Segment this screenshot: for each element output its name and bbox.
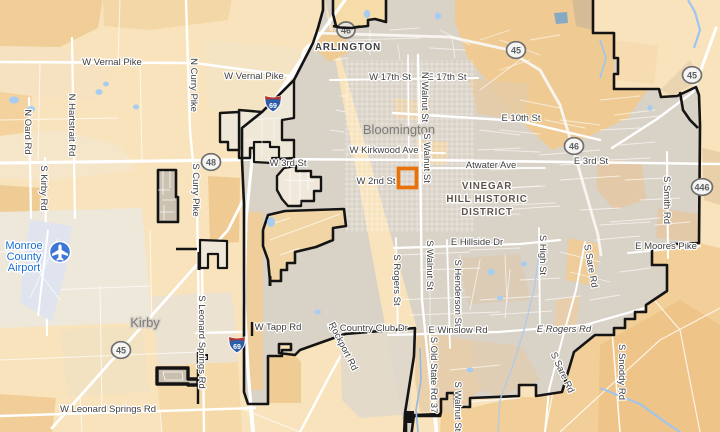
svg-text:N Curry Pike: N Curry Pike — [188, 58, 199, 112]
svg-text:DISTRICT: DISTRICT — [461, 207, 513, 218]
svg-text:W 3rd St: W 3rd St — [270, 158, 307, 169]
svg-text:E 10th St: E 10th St — [501, 113, 540, 124]
svg-text:E Moores Pike: E Moores Pike — [635, 241, 697, 252]
svg-text:S Old State Rd 37: S Old State Rd 37 — [428, 337, 439, 414]
svg-text:W Leonard Springs Rd: W Leonard Springs Rd — [60, 404, 156, 415]
svg-text:S Walnut Str: S Walnut Str — [452, 382, 463, 432]
svg-text:S Smith Rd: S Smith Rd — [661, 176, 672, 224]
svg-text:45: 45 — [511, 46, 521, 56]
svg-text:Kirby: Kirby — [130, 315, 160, 330]
svg-text:E 17th St: E 17th St — [427, 72, 466, 83]
svg-text:45: 45 — [687, 71, 697, 81]
svg-text:W Vernal Pike: W Vernal Pike — [224, 71, 284, 82]
svg-text:45: 45 — [116, 346, 126, 356]
svg-text:S Rogers St: S Rogers St — [391, 254, 402, 306]
svg-text:W 2nd St: W 2nd St — [356, 176, 395, 187]
svg-text:S Kirby Rd: S Kirby Rd — [38, 165, 49, 210]
svg-text:446: 446 — [694, 183, 709, 193]
svg-text:S Curry Pike: S Curry Pike — [190, 163, 201, 216]
svg-text:E Rogers Rd: E Rogers Rd — [537, 324, 592, 335]
svg-text:E Hillside Dr: E Hillside Dr — [451, 237, 503, 248]
svg-text:46: 46 — [569, 142, 579, 152]
svg-text:W Kirkwood Ave: W Kirkwood Ave — [350, 145, 419, 156]
svg-text:HILL HISTORIC: HILL HISTORIC — [446, 194, 527, 205]
svg-text:N Walnut St: N Walnut St — [419, 72, 430, 123]
svg-text:48: 48 — [206, 158, 216, 168]
svg-text:W Vernal Pike: W Vernal Pike — [82, 57, 142, 68]
svg-text:S Henderson St: S Henderson St — [452, 259, 463, 326]
svg-text:69: 69 — [269, 103, 277, 110]
svg-text:S Walnut St: S Walnut St — [421, 133, 432, 183]
svg-text:S Leonard Springs Rd: S Leonard Springs Rd — [196, 295, 207, 388]
svg-text:S Snoddy Rd: S Snoddy Rd — [616, 344, 627, 400]
svg-text:S High St: S High St — [537, 235, 548, 275]
svg-text:E 3rd St: E 3rd St — [574, 156, 609, 167]
svg-text:E Winslow Rd: E Winslow Rd — [428, 325, 487, 336]
svg-text:N Oard Rd: N Oard Rd — [22, 109, 33, 154]
svg-text:VINEGAR: VINEGAR — [462, 181, 512, 192]
svg-text:Atwater Ave: Atwater Ave — [466, 160, 517, 171]
svg-text:ARLINGTON: ARLINGTON — [315, 42, 381, 53]
svg-text:69: 69 — [233, 344, 241, 351]
svg-text:W 17th St: W 17th St — [369, 72, 411, 83]
svg-text:W Tapp Rd: W Tapp Rd — [255, 322, 302, 333]
svg-text:Airport: Airport — [8, 262, 40, 274]
svg-text:N Hartstrait Rd: N Hartstrait Rd — [66, 94, 77, 157]
svg-text:S Walnut St: S Walnut St — [424, 240, 435, 290]
